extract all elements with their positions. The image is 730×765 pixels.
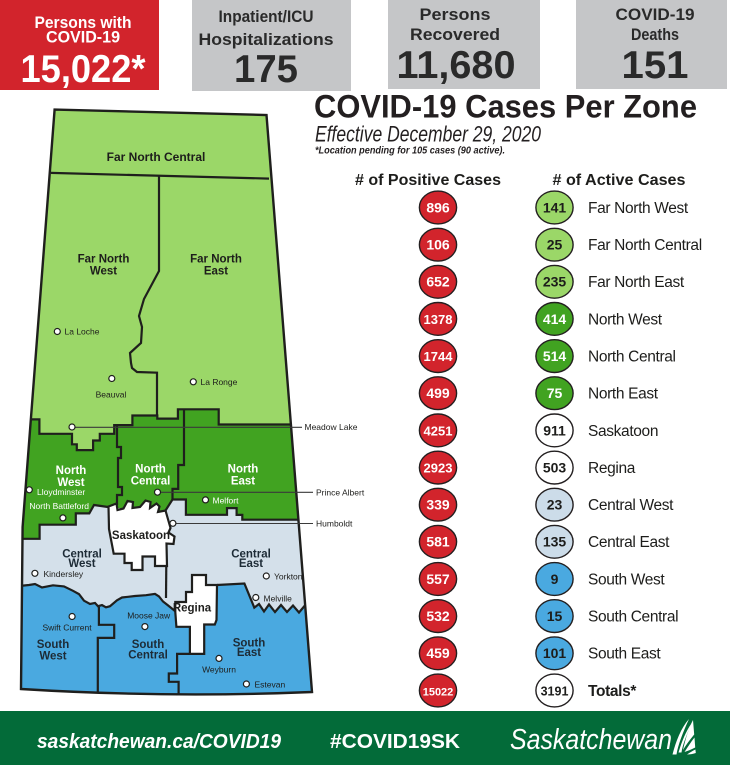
svg-text:2923: 2923 — [424, 460, 453, 475]
svg-text:Central East: Central East — [588, 534, 670, 551]
svg-text:15: 15 — [547, 608, 563, 624]
svg-text:141: 141 — [543, 199, 567, 215]
svg-text:414: 414 — [543, 311, 567, 327]
svg-text:Central: Central — [131, 476, 171, 488]
svg-text:151: 151 — [622, 44, 689, 87]
svg-text:581: 581 — [426, 534, 450, 550]
svg-text:175: 175 — [234, 48, 298, 91]
svg-text:3191: 3191 — [541, 684, 569, 698]
svg-text:West: West — [39, 651, 66, 663]
svg-text:Recovered: Recovered — [410, 25, 500, 44]
svg-text:Saskatchewan: Saskatchewan — [510, 724, 672, 756]
svg-text:Far North East: Far North East — [588, 274, 685, 291]
svg-text:Regina: Regina — [588, 460, 636, 477]
svg-text:106: 106 — [426, 237, 450, 253]
svg-text:235: 235 — [543, 274, 567, 290]
svg-text:Kindersley: Kindersley — [44, 569, 84, 579]
svg-text:9: 9 — [551, 571, 559, 587]
svg-text:652: 652 — [426, 274, 450, 290]
svg-text:Far North Central: Far North Central — [107, 150, 206, 164]
svg-text:135: 135 — [543, 534, 567, 550]
svg-text:Deaths: Deaths — [631, 25, 679, 44]
svg-text:Saskatoon: Saskatoon — [112, 530, 170, 542]
svg-text:COVID-19: COVID-19 — [616, 5, 695, 24]
svg-text:saskatchewan.ca/COVID19: saskatchewan.ca/COVID19 — [37, 730, 282, 753]
svg-text:15022: 15022 — [423, 686, 454, 698]
svg-text:#COVID19SK: #COVID19SK — [330, 731, 461, 753]
svg-text:11,680: 11,680 — [397, 44, 516, 87]
svg-text:COVID-19: COVID-19 — [46, 28, 120, 47]
svg-text:North East: North East — [588, 386, 659, 403]
svg-text:459: 459 — [426, 645, 450, 661]
svg-text:Inpatient/ICU: Inpatient/ICU — [219, 7, 314, 26]
svg-text:101: 101 — [543, 645, 567, 661]
svg-text:Swift Current: Swift Current — [42, 623, 92, 633]
svg-text:Estevan: Estevan — [255, 680, 286, 690]
svg-text:75: 75 — [547, 385, 563, 401]
svg-text:South East: South East — [588, 646, 661, 663]
svg-text:South Central: South Central — [588, 609, 678, 626]
svg-text:23: 23 — [547, 497, 563, 513]
svg-text:Weyburn: Weyburn — [202, 664, 236, 674]
svg-text:North Central: North Central — [588, 349, 676, 366]
svg-text:557: 557 — [426, 571, 450, 587]
svg-text:1744: 1744 — [424, 349, 454, 364]
svg-text:4251: 4251 — [424, 423, 453, 438]
svg-text:25: 25 — [547, 237, 563, 253]
svg-text:Meadow Lake: Meadow Lake — [305, 422, 358, 432]
svg-text:Regina: Regina — [173, 603, 212, 615]
svg-text:Prince Albert: Prince Albert — [316, 488, 365, 498]
svg-text:COVID-19 Cases Per Zone: COVID-19 Cases Per Zone — [314, 89, 697, 125]
svg-text:Melfort: Melfort — [213, 496, 240, 506]
svg-text:# of Active Cases: # of Active Cases — [553, 172, 686, 189]
svg-text:Effective December 29, 2020: Effective December 29, 2020 — [315, 122, 542, 147]
svg-text:Central West: Central West — [588, 497, 674, 514]
svg-text:339: 339 — [426, 497, 450, 513]
svg-text:Beauval: Beauval — [96, 390, 127, 400]
svg-text:Far North Central: Far North Central — [588, 237, 702, 254]
svg-text:South West: South West — [588, 571, 665, 588]
svg-text:Melville: Melville — [264, 594, 293, 604]
svg-text:West: West — [90, 266, 117, 278]
svg-text:North Battleford: North Battleford — [29, 501, 89, 511]
svg-text:Central: Central — [128, 650, 168, 662]
svg-text:Far North: Far North — [190, 254, 242, 266]
svg-text:503: 503 — [543, 459, 567, 475]
svg-text:La Loche: La Loche — [65, 327, 100, 337]
svg-text:896: 896 — [426, 199, 450, 215]
svg-text:North West: North West — [588, 311, 663, 328]
svg-text:532: 532 — [426, 608, 450, 624]
svg-text:Far North: Far North — [78, 254, 130, 266]
svg-text:Humboldt: Humboldt — [316, 519, 353, 529]
svg-text:North: North — [56, 465, 87, 477]
svg-text:East: East — [237, 647, 261, 659]
svg-text:Lloydminster: Lloydminster — [37, 487, 85, 497]
svg-text:East: East — [239, 558, 263, 570]
svg-text:North: North — [228, 464, 259, 476]
svg-text:South: South — [37, 639, 70, 651]
svg-text:514: 514 — [543, 348, 567, 364]
svg-text:1378: 1378 — [424, 312, 453, 327]
svg-text:Moose Jaw: Moose Jaw — [127, 610, 171, 620]
svg-text:Hospitalizations: Hospitalizations — [199, 30, 334, 49]
svg-text:Far North West: Far North West — [588, 200, 689, 217]
svg-text:East: East — [231, 476, 255, 488]
svg-text:# of Positive Cases: # of Positive Cases — [355, 172, 501, 189]
svg-text:15,022*: 15,022* — [21, 48, 147, 91]
svg-text:Persons: Persons — [420, 5, 491, 24]
svg-text:North: North — [135, 464, 166, 476]
svg-text:La Ronge: La Ronge — [201, 377, 238, 387]
svg-text:Totals*: Totals* — [588, 683, 637, 700]
svg-text:East: East — [204, 266, 228, 278]
svg-text:911: 911 — [543, 422, 566, 438]
svg-text:*Location pending for 105 case: *Location pending for 105 cases (90 acti… — [315, 145, 505, 157]
svg-text:499: 499 — [426, 385, 450, 401]
svg-text:Yorkton: Yorkton — [274, 572, 303, 582]
svg-text:Saskatoon: Saskatoon — [588, 423, 658, 440]
